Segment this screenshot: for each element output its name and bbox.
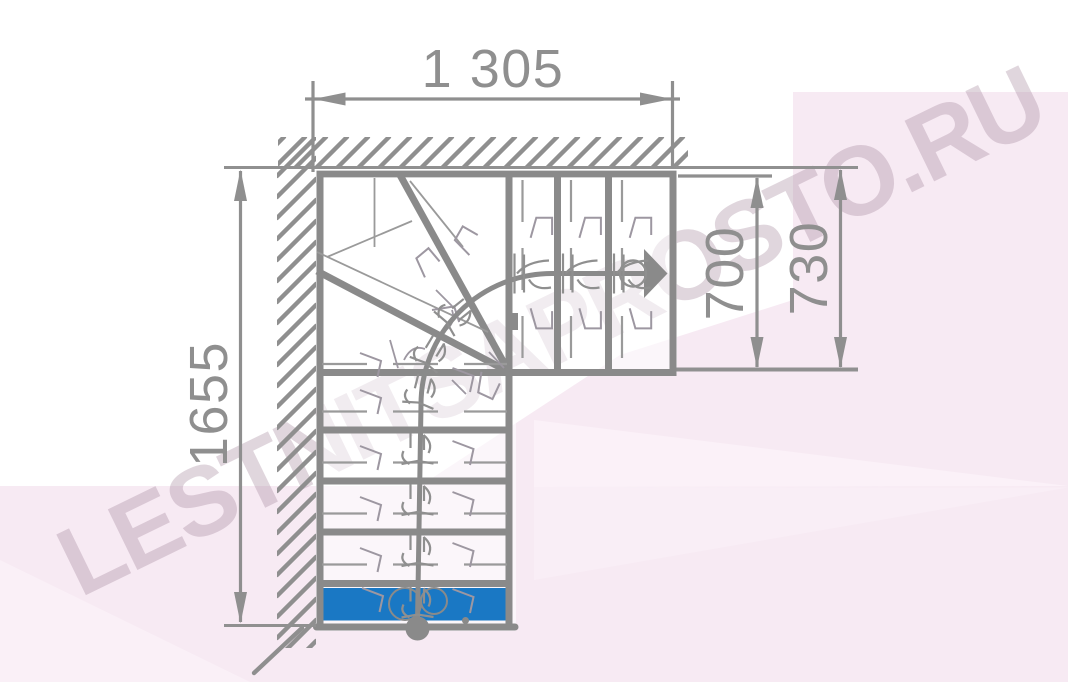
svg-text:1 305: 1 305 (422, 39, 565, 99)
svg-text:1655: 1655 (179, 341, 239, 467)
svg-text:730: 730 (779, 221, 839, 316)
svg-text:700: 700 (695, 226, 755, 321)
